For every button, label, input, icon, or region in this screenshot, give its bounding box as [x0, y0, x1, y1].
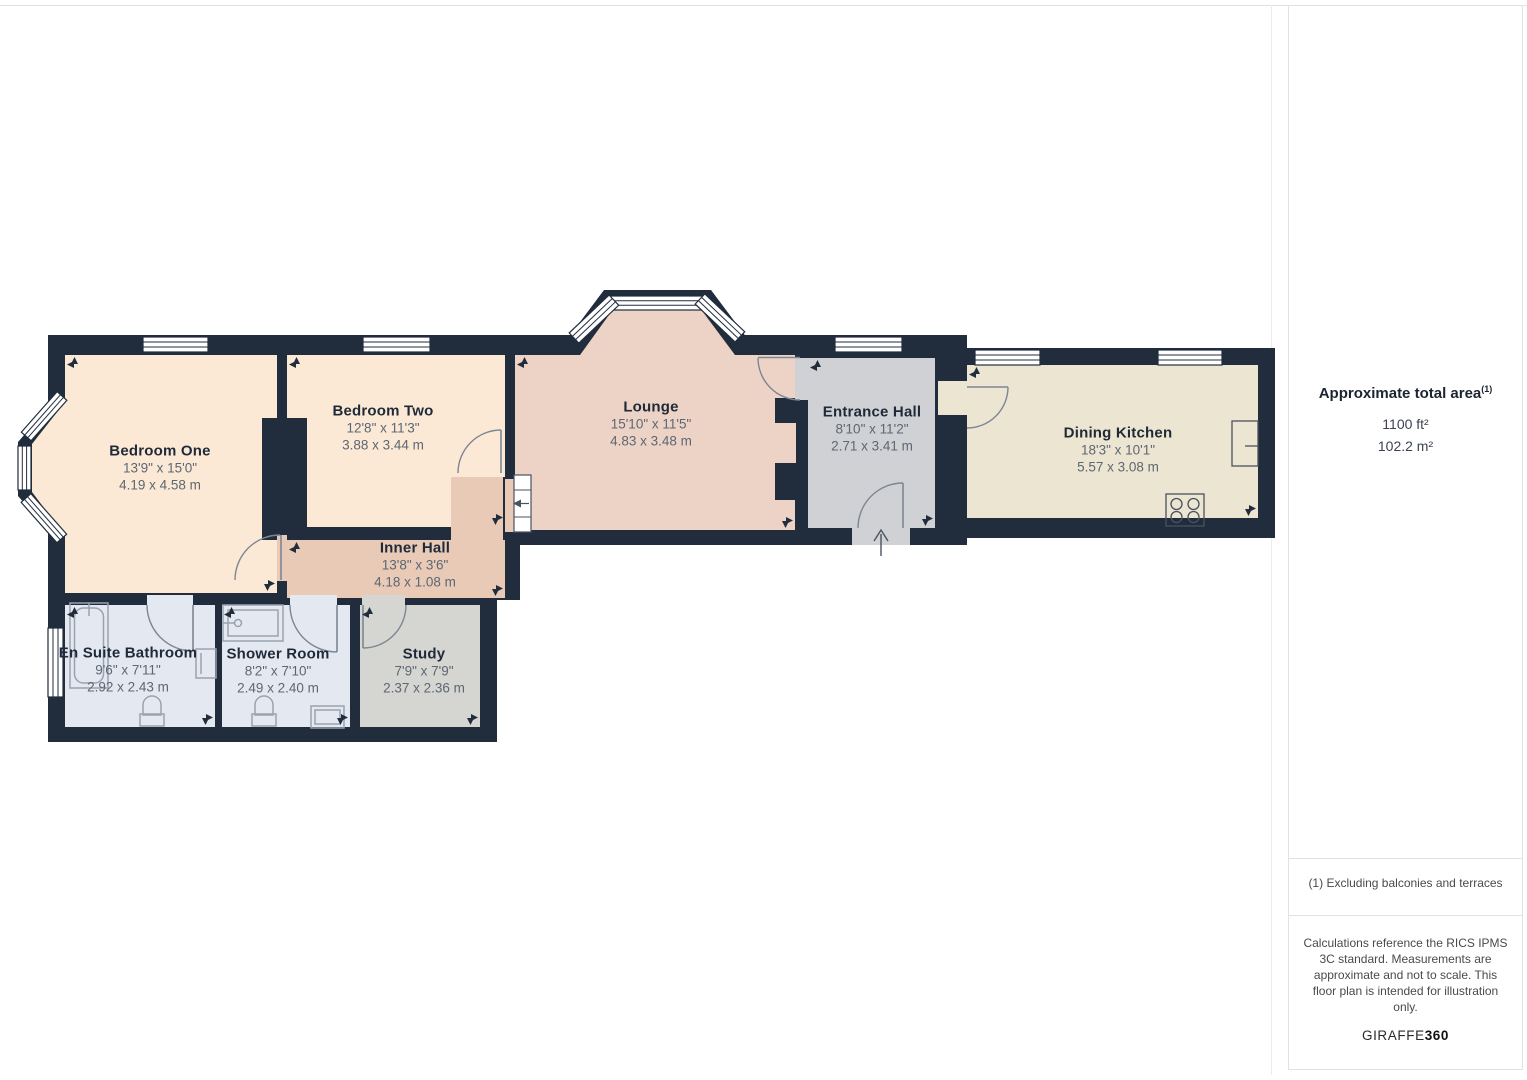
floor-inner-hall: [287, 540, 505, 598]
sidebar-divider: [1289, 915, 1522, 916]
window: [48, 628, 63, 697]
footnote-text: (1) Excluding balconies and terraces: [1289, 876, 1522, 890]
window: [835, 337, 902, 352]
window: [363, 337, 430, 352]
floor-study: [360, 605, 480, 727]
window: [143, 337, 208, 352]
bay-window: [18, 446, 31, 490]
stairs-icon: [513, 475, 531, 532]
footnote-marker: (1): [1481, 384, 1492, 394]
sidebar-divider: [1289, 858, 1522, 859]
disclaimer-text: Calculations reference the RICS IPMS 3C …: [1301, 936, 1510, 1016]
floor-bedroom-one: [65, 355, 277, 593]
total-area-imperial: 1100 ft²: [1289, 416, 1522, 432]
floor-inner-hall-stub: [451, 477, 503, 540]
bay-window: [610, 296, 704, 310]
sidebar-panel: Approximate total area(1) 1100 ft² 102.2…: [1288, 5, 1523, 1070]
floor-entrance-hall: [808, 358, 935, 528]
window: [975, 350, 1040, 365]
page: Bedroom One13'9" x 15'0"4.19 x 4.58 mBed…: [0, 0, 1527, 1080]
floor-lounge: [515, 355, 795, 530]
total-area-metric: 102.2 m²: [1289, 438, 1522, 454]
window: [1158, 350, 1222, 365]
total-area-title: Approximate total area(1): [1289, 384, 1522, 402]
brand-logo: GIRAFFE360: [1289, 1028, 1522, 1043]
floor-dining-kitchen: [967, 365, 1258, 518]
